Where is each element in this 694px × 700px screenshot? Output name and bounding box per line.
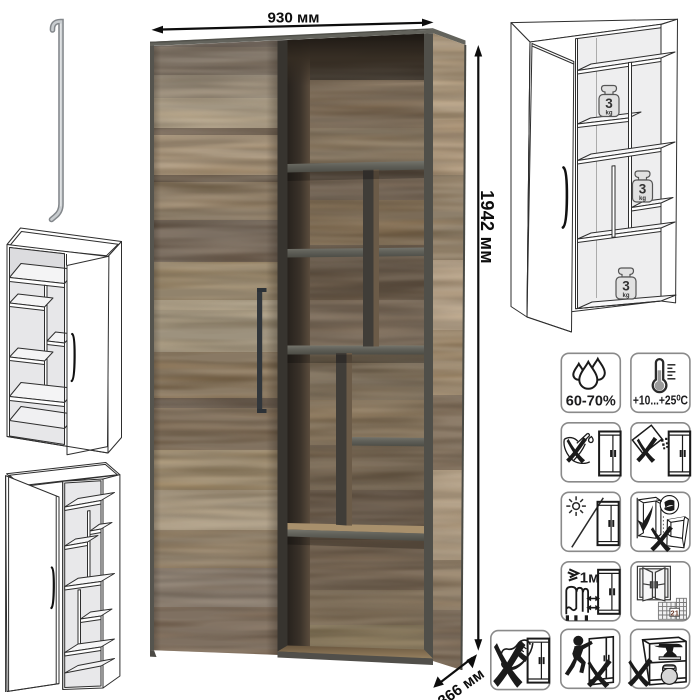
svg-text:21: 21: [671, 608, 679, 617]
svg-text:kg: kg: [605, 111, 612, 117]
svg-text:1942 мм: 1942 мм: [477, 190, 497, 264]
svg-text:930 мм: 930 мм: [267, 9, 319, 26]
svg-text:+10...+25⁰C: +10...+25⁰C: [633, 392, 688, 407]
svg-text:3: 3: [605, 96, 613, 111]
svg-text:60-70%: 60-70%: [566, 393, 616, 409]
svg-text:366 мм: 366 мм: [435, 665, 488, 700]
svg-text:1м: 1м: [580, 569, 599, 586]
